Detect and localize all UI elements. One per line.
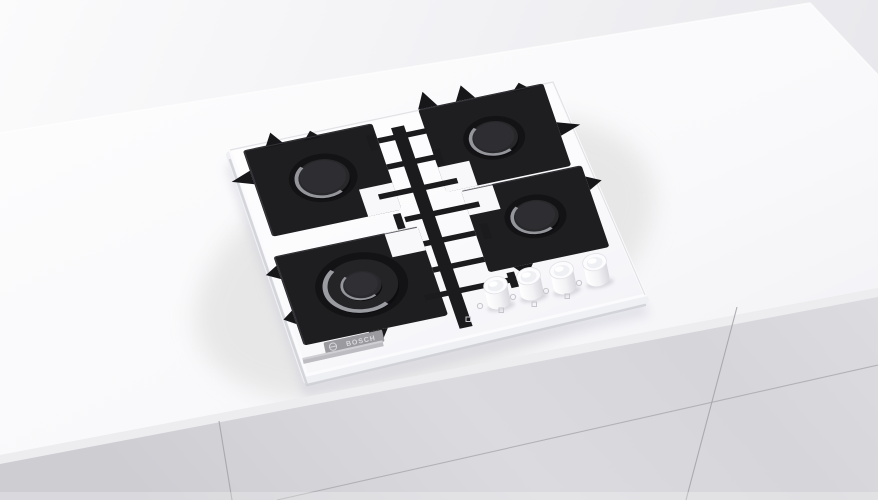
product-photo: BOSCH bbox=[0, 0, 878, 500]
photo-bottom-fade bbox=[0, 492, 878, 500]
product-photo-canvas: BOSCH bbox=[0, 0, 878, 500]
